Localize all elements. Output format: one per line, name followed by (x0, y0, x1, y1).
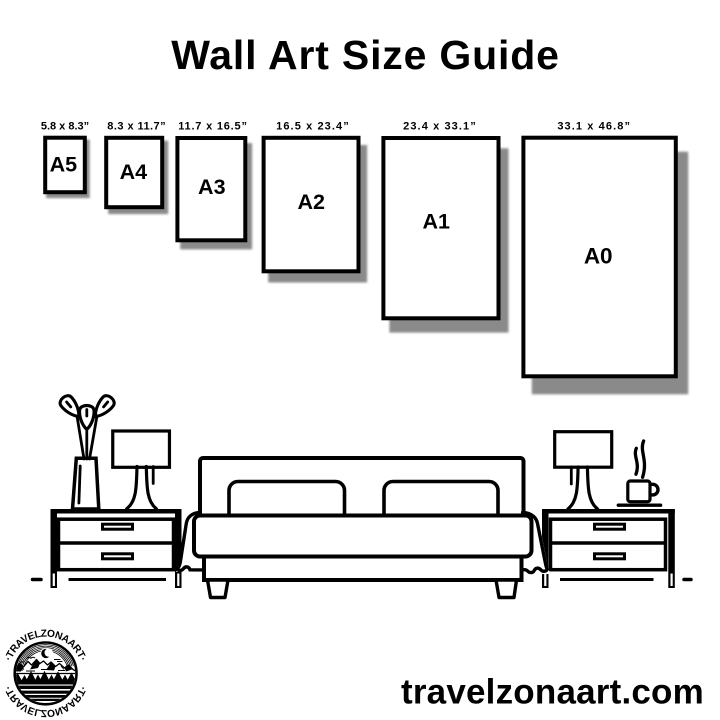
svg-text:8.3 x 11.7”: 8.3 x 11.7” (107, 121, 166, 133)
svg-text:A3: A3 (198, 175, 226, 199)
svg-text:travelzonaart.com: travelzonaart.com (401, 673, 704, 712)
svg-text:A0: A0 (584, 243, 613, 268)
svg-text:11.7 x 16.5”: 11.7 x 16.5” (178, 121, 248, 133)
svg-text:16.5 x 23.4”: 16.5 x 23.4” (276, 121, 350, 133)
svg-text:23.4 x 33.1”: 23.4 x 33.1” (403, 121, 477, 133)
svg-text:A5: A5 (50, 153, 78, 177)
svg-text:A1: A1 (422, 210, 450, 234)
svg-text:Wall Art Size Guide: Wall Art Size Guide (171, 32, 559, 78)
svg-text:A4: A4 (120, 160, 148, 184)
svg-text:5.8 x 8.3”: 5.8 x 8.3” (41, 121, 89, 133)
svg-text:33.1 x 46.8”: 33.1 x 46.8” (557, 121, 631, 133)
svg-text:A2: A2 (297, 190, 325, 214)
